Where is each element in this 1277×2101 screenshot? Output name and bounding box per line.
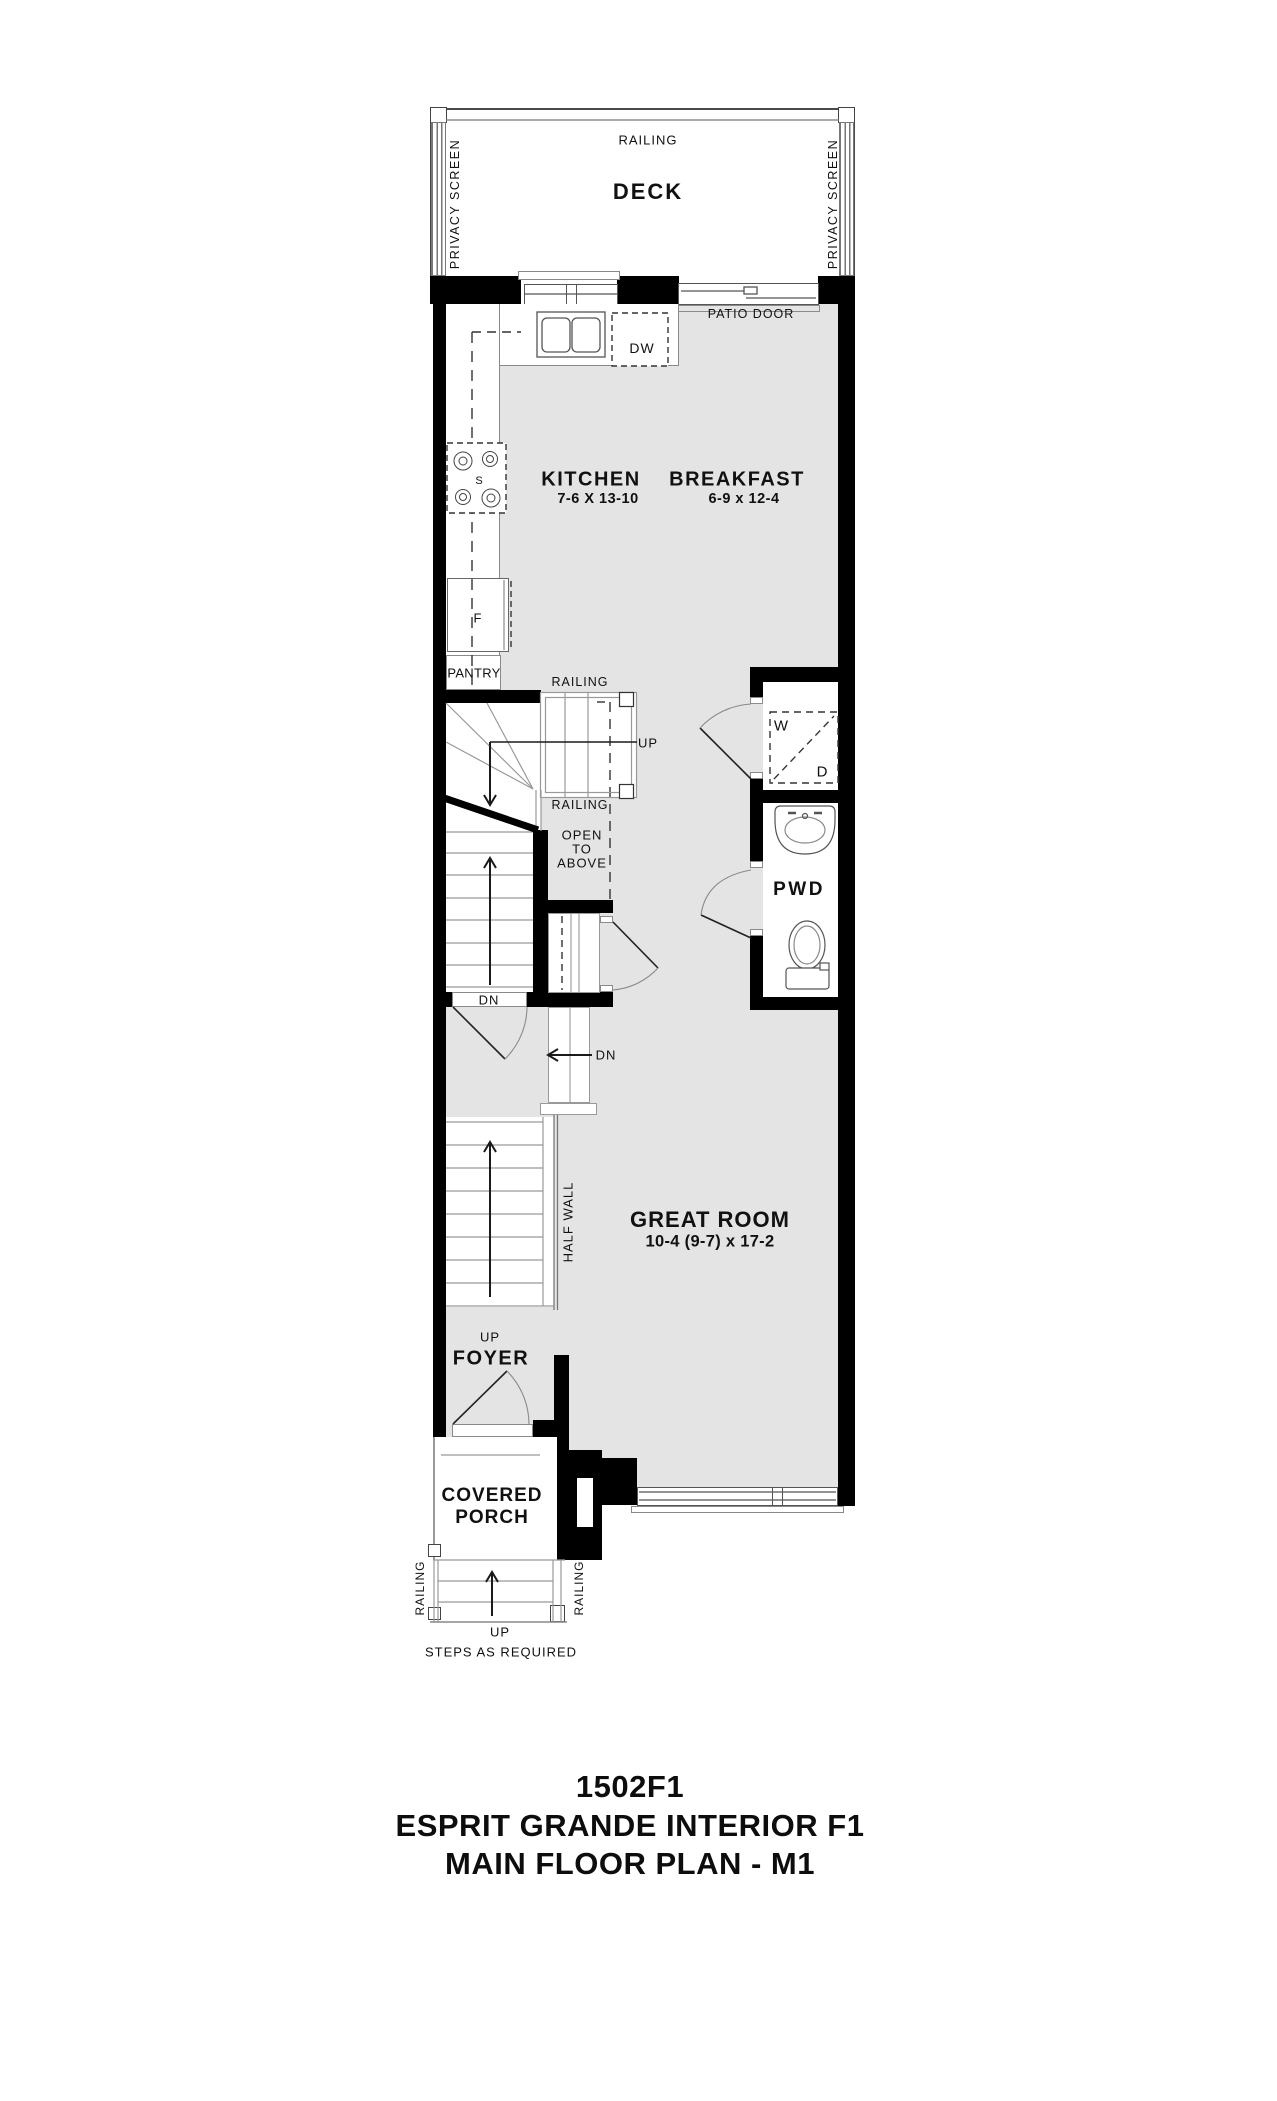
great-room-title: GREAT ROOM — [630, 1207, 790, 1233]
privacy-screen-left-label: PRIVACY SCREEN — [448, 139, 462, 269]
pantry-label: PANTRY — [447, 666, 500, 681]
dryer-label: D — [817, 764, 828, 781]
patio-door-frame — [678, 283, 819, 305]
wall-pantry-bottom — [433, 690, 541, 703]
privacy-screen-right-label: PRIVACY SCREEN — [826, 139, 840, 269]
steps-post-right — [550, 1605, 565, 1622]
porch-railing-left-label: RAILING — [413, 1560, 427, 1615]
powder-room-title: PWD — [773, 879, 825, 901]
porch-post-left — [428, 1544, 441, 1557]
wall-right — [838, 276, 855, 1506]
stair-railing-lower-label: RAILING — [551, 798, 608, 812]
open-to-above-line3: ABOVE — [557, 856, 607, 871]
breakfast-title: BREAKFAST — [669, 469, 805, 492]
closet-door-sill-top — [600, 916, 613, 923]
pwd-door-sill-top — [750, 861, 763, 868]
deck-railing-label: RAILING — [618, 133, 677, 148]
wall-top-a — [430, 276, 521, 304]
kitchen-dimensions: 7-6 X 13-10 — [557, 491, 638, 507]
fridge-label: F — [474, 611, 483, 626]
washer-label: W — [774, 718, 788, 735]
great-room-window-sill — [631, 1506, 844, 1513]
wall-porch-notch — [577, 1478, 593, 1527]
winder-treads — [446, 703, 533, 789]
understair-angled-wall — [444, 798, 538, 830]
half-wall-label: HALF WALL — [561, 1182, 576, 1263]
pwd-door-sill-bottom — [750, 929, 763, 936]
wall-stair-right — [533, 830, 548, 993]
patio-door-label: PATIO DOOR — [708, 307, 795, 321]
great-room-window — [637, 1487, 838, 1506]
kitchen-title: KITCHEN — [541, 469, 640, 492]
wall-left — [433, 276, 446, 1450]
stair-up-label: UP — [638, 736, 658, 751]
foyer-stairs — [446, 1117, 554, 1307]
porch-railing-right-label: RAILING — [572, 1560, 586, 1615]
open-to-above-line1: OPEN — [562, 828, 603, 843]
stove-label: S — [475, 475, 482, 487]
steps-post-left — [428, 1607, 441, 1620]
privacy-screen-left — [431, 122, 446, 276]
kitchen-window-mullion — [566, 284, 577, 305]
deck-title: DECK — [613, 179, 683, 205]
laundry-door-sill-bottom — [750, 772, 763, 779]
porch-title-line2: PORCH — [455, 1507, 529, 1529]
floor-name: MAIN FLOOR PLAN - M1 — [130, 1845, 1130, 1884]
stair-railing-box — [540, 692, 637, 798]
basement-arrow-label: DN — [596, 1048, 617, 1063]
under-stair-closet — [548, 913, 600, 993]
wall-laundry-pwd-divider — [750, 790, 852, 803]
plan-number: 1502F1 — [130, 1768, 1130, 1807]
privacy-screen-right — [839, 122, 854, 276]
deck-post-right — [838, 107, 855, 123]
breakfast-dimensions: 6-9 x 12-4 — [708, 491, 779, 507]
plan-name: ESPRIT GRANDE INTERIOR F1 — [130, 1807, 1130, 1846]
wall-pwd-left-lower — [750, 935, 763, 997]
foyer-up-label: UP — [480, 1330, 500, 1345]
dishwasher-label: DW — [629, 340, 654, 356]
mid-stair-treads — [446, 832, 533, 987]
wall-dn-right — [527, 992, 613, 1007]
stairwell-cap — [540, 1103, 597, 1115]
great-room-window-mullion — [772, 1487, 783, 1506]
wall-top-b — [617, 276, 679, 304]
wall-closet-top — [548, 900, 613, 913]
wall-laundry-top — [750, 667, 852, 682]
open-to-above-line2: TO — [572, 842, 592, 857]
steps-note-label: STEPS AS REQUIRED — [425, 1645, 577, 1660]
front-door-sill — [452, 1424, 533, 1437]
laundry-door-sill-top — [750, 697, 763, 704]
great-room-dimensions: 10-4 (9-7) x 17-2 — [646, 1233, 775, 1252]
kitchen-window-sill — [518, 271, 620, 280]
wall-greatroom-step — [595, 1458, 637, 1505]
wall-pwd-bottom — [750, 997, 852, 1010]
basement-stairwell — [548, 1007, 590, 1103]
title-block: 1502F1 ESPRIT GRANDE INTERIOR F1 MAIN FL… — [130, 1768, 1130, 1884]
foyer-title: FOYER — [453, 1348, 529, 1371]
wall-dn-left — [433, 992, 452, 1007]
porch-title-line1: COVERED — [442, 1485, 543, 1507]
closet-door-sill-bottom — [600, 985, 613, 992]
floor-plan-page: RAILING DECK PRIVACY SCREEN PRIVACY SCRE… — [0, 0, 1277, 2101]
basement-door-label: DN — [479, 993, 500, 1008]
stair-railing-upper-label: RAILING — [551, 675, 608, 689]
deck-post-left — [430, 107, 447, 123]
steps-up-label: UP — [490, 1625, 510, 1640]
wall-pwd-left-upper — [750, 803, 763, 863]
